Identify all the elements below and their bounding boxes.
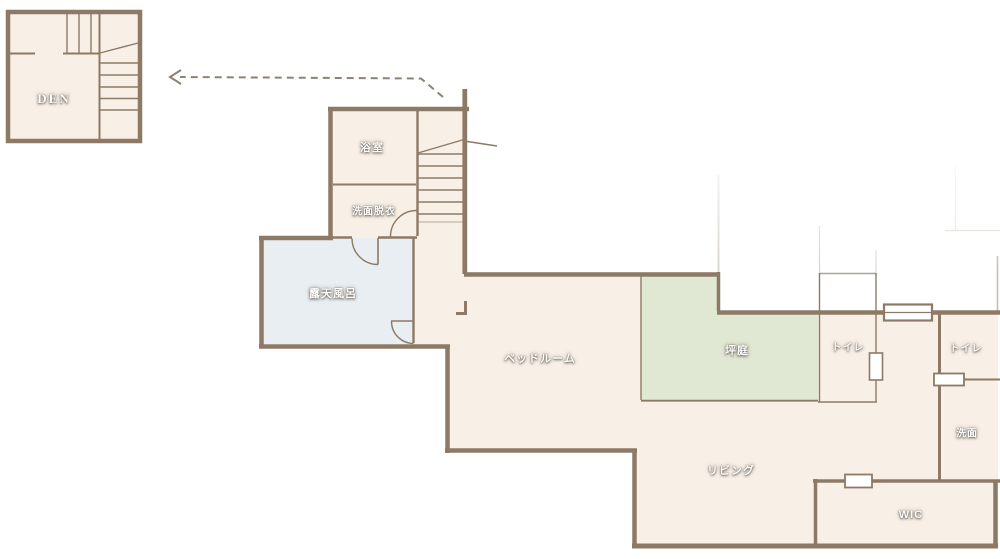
- washstand-door-symbol: [934, 374, 964, 386]
- courtyard-floor: [641, 274, 818, 401]
- room-label-wic: WIC: [899, 509, 923, 521]
- floor-plan-drawing: [0, 0, 1000, 559]
- floor-fills: [6, 12, 998, 548]
- fade-overlay: [640, 140, 1000, 275]
- room-label-dressing: 洗面脱衣: [352, 203, 396, 218]
- room-label-den: DEN: [37, 91, 70, 107]
- floor-plan: DEN 浴室 洗面脱衣 露天風呂 ベッドルーム 坪庭 トイレ トイレ 洗面 リビ…: [0, 0, 1000, 559]
- room-label-bedroom: ベッドルーム: [504, 350, 576, 366]
- toilet-1-door-symbol: [870, 353, 883, 380]
- window-symbol: [884, 305, 932, 321]
- wic-door-symbol: [845, 475, 872, 488]
- arrow-dashed-line: [180, 77, 443, 97]
- room-label-washstand: 洗面: [956, 425, 978, 440]
- arrow-head: [170, 70, 181, 84]
- room-label-living: リビング: [707, 462, 755, 478]
- direction-arrow: [170, 70, 443, 97]
- room-label-bath: 浴室: [360, 139, 384, 155]
- room-label-toilet-1: トイレ: [832, 339, 865, 354]
- room-label-open-air-bath: 露天風呂: [309, 285, 357, 301]
- den-floor: [6, 12, 142, 143]
- room-label-toilet-2: トイレ: [950, 340, 983, 355]
- room-label-courtyard: 坪庭: [725, 342, 749, 358]
